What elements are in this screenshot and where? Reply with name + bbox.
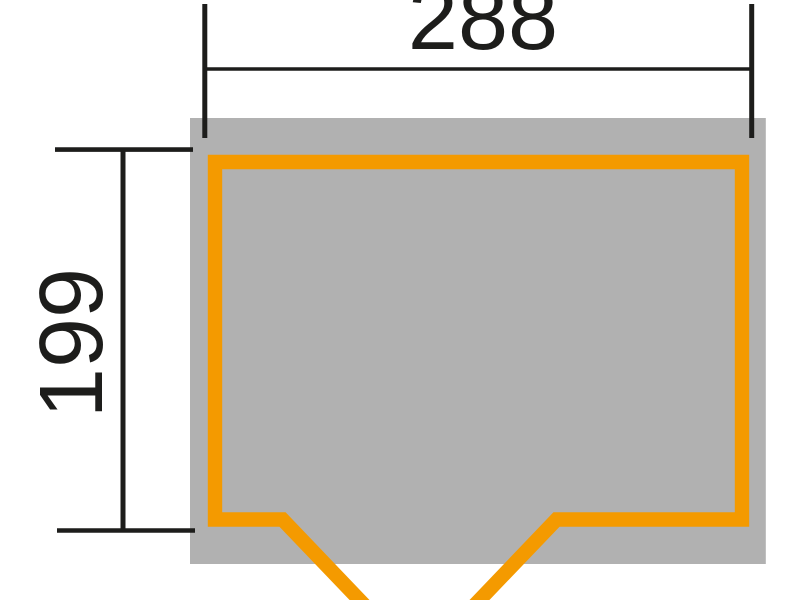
svg-text:288: 288	[408, 0, 558, 69]
svg-text:199: 199	[22, 268, 122, 418]
